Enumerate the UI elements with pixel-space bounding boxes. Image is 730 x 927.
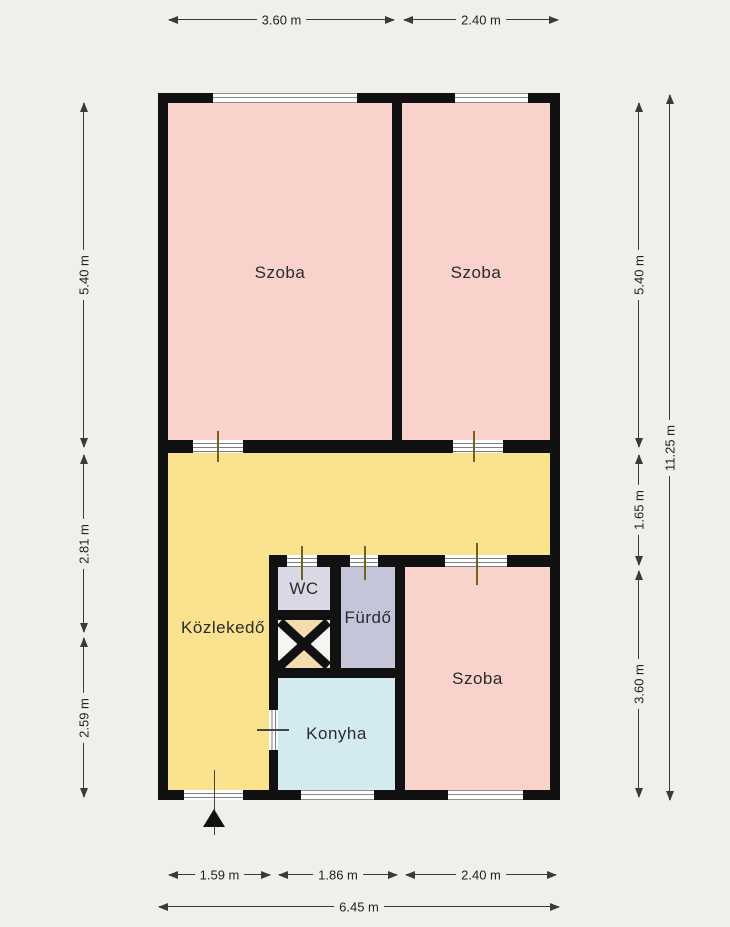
arrow-left-icon [168, 871, 178, 879]
shaft-access-mark [278, 660, 286, 668]
wall-wc-furdo-divider [330, 555, 341, 677]
dim-bottom-total-width: 6.45 m [159, 906, 559, 907]
arrow-down-icon [80, 438, 88, 448]
door-tick-konyha-side [257, 729, 289, 731]
arrow-down-icon [80, 788, 88, 798]
arrow-down-icon [635, 438, 643, 448]
arrow-right-icon [385, 16, 395, 24]
dim-label: 11.25 m [663, 419, 678, 475]
dim-right-upper: 5.40 m [638, 103, 639, 447]
door-tick-szoba-top-left [217, 431, 219, 462]
arrow-up-icon [80, 454, 88, 464]
window-top-left [213, 93, 357, 103]
door-szoba-top-right [453, 440, 503, 453]
dim-label: 1.86 m [313, 868, 363, 883]
entrance-arrow-icon [203, 809, 225, 827]
dim-bottom-entrance: 1.59 m [169, 874, 270, 875]
arrow-left-icon [403, 16, 413, 24]
dim-top-right-width: 2.40 m [404, 19, 558, 20]
arrow-up-icon [80, 637, 88, 647]
wall-szoba-bottom-left [395, 555, 405, 790]
arrow-up-icon [635, 570, 643, 580]
arrow-up-icon [80, 102, 88, 112]
wall-below-shaft [269, 668, 405, 678]
dim-label: 2.59 m [77, 693, 92, 743]
arrow-right-icon [550, 903, 560, 911]
window-konyha-bottom [301, 790, 374, 800]
arrow-right-icon [261, 871, 271, 879]
door-tick-furdo [364, 546, 366, 580]
dim-label: 2.40 m [456, 13, 506, 28]
arrow-up-icon [666, 94, 674, 104]
arrow-up-icon [635, 454, 643, 464]
dim-left-upper: 5.40 m [83, 103, 84, 447]
dim-label: 2.40 m [456, 868, 506, 883]
arrow-right-icon [388, 871, 398, 879]
door-tick-szoba-top-right [473, 431, 475, 462]
door-tick-wc [301, 546, 303, 580]
arrow-right-icon [547, 871, 557, 879]
dim-label: 2.81 m [77, 519, 92, 569]
arrow-left-icon [405, 871, 415, 879]
dim-bottom-szoba: 2.40 m [406, 874, 556, 875]
dim-top-left-width: 3.60 m [169, 19, 394, 20]
dim-bottom-konyha: 1.86 m [279, 874, 397, 875]
dim-label: 1.59 m [195, 868, 245, 883]
arrow-left-icon [158, 903, 168, 911]
arrow-left-icon [168, 16, 178, 24]
arrow-left-icon [278, 871, 288, 879]
arrow-down-icon [666, 791, 674, 801]
dim-right-middle: 1.65 m [638, 455, 639, 565]
dim-left-lower: 2.59 m [83, 638, 84, 797]
dim-right-total-height: 11.25 m [669, 95, 670, 800]
floorplan-canvas: Szoba Szoba Közlekedő WC Fürdő Konyha Sz… [0, 0, 730, 927]
wall-top-room-divider [392, 103, 402, 442]
arrow-down-icon [635, 556, 643, 566]
dim-label: 5.40 m [632, 250, 647, 300]
window-top-right [455, 93, 528, 103]
dim-label: 3.60 m [632, 659, 647, 709]
arrow-down-icon [635, 788, 643, 798]
dim-label: 1.65 m [632, 485, 647, 535]
arrow-down-icon [80, 623, 88, 633]
arrow-up-icon [635, 102, 643, 112]
dim-label: 5.40 m [77, 250, 92, 300]
arrow-right-icon [549, 16, 559, 24]
dim-left-middle: 2.81 m [83, 455, 84, 632]
door-tick-szoba-bottom [476, 543, 478, 585]
window-szoba-bottom [448, 790, 523, 800]
dim-label: 6.45 m [334, 900, 384, 915]
dim-label: 3.60 m [257, 13, 307, 28]
dim-right-lower: 3.60 m [638, 571, 639, 797]
